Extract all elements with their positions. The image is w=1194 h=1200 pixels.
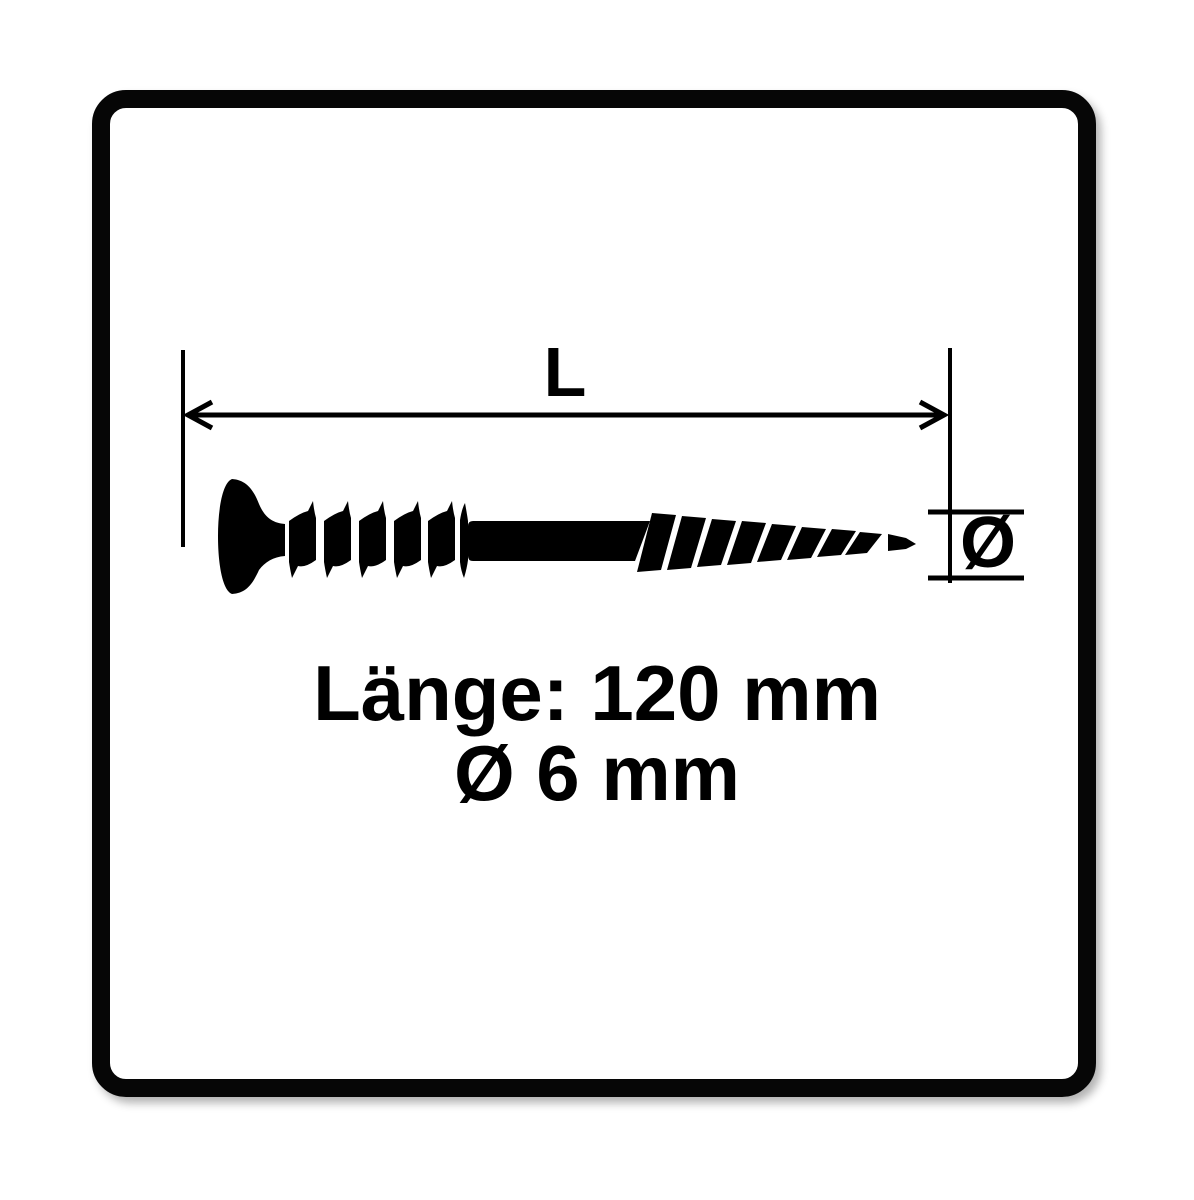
screw-technical-drawing	[0, 0, 1194, 1200]
screw-thread-ring	[359, 501, 386, 578]
screw-thread-ring	[324, 501, 351, 578]
screw-head	[218, 479, 285, 594]
screw-thread-ring	[394, 501, 421, 578]
screw-thread-ring	[289, 501, 316, 578]
length-spec-text: Länge: 120 mm	[96, 653, 1098, 733]
diameter-symbol: Ø	[960, 507, 1016, 579]
screw-illustration	[218, 479, 916, 594]
length-dimension-label: L	[544, 337, 587, 407]
screw-shank	[468, 521, 650, 561]
product-technical-image: L Ø Länge: 120 mm Ø 6 mm	[0, 0, 1194, 1200]
screw-thread-crest	[460, 503, 468, 578]
screw-thread-ring	[428, 501, 455, 578]
screw-tip	[888, 534, 916, 551]
diameter-spec-text: Ø 6 mm	[96, 733, 1098, 813]
